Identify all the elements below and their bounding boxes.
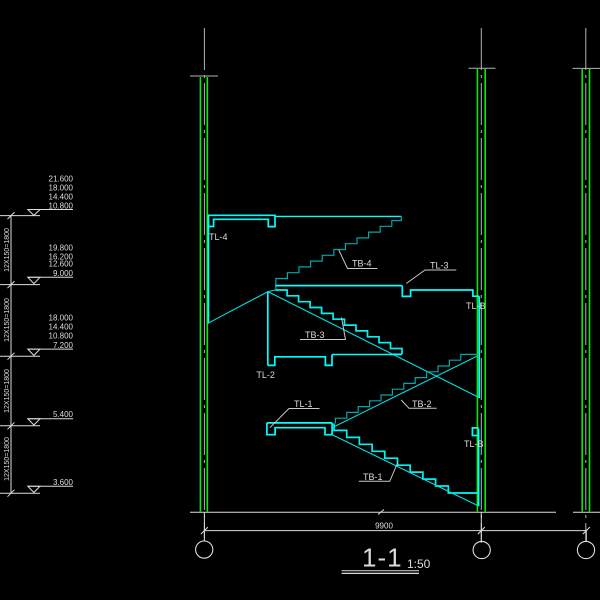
svg-text:1-1: 1-1 xyxy=(362,543,403,573)
svg-text:TB-2: TB-2 xyxy=(412,399,432,409)
svg-text:14.400: 14.400 xyxy=(49,193,74,202)
svg-text:TL-2: TL-2 xyxy=(256,370,275,380)
svg-text:10.800: 10.800 xyxy=(49,332,74,341)
svg-text:18.000: 18.000 xyxy=(49,314,74,323)
svg-text:10.800: 10.800 xyxy=(49,201,74,210)
svg-text:3.600: 3.600 xyxy=(53,478,74,487)
svg-text:TL-B: TL-B xyxy=(466,301,486,311)
svg-text:12X150=1800: 12X150=1800 xyxy=(4,298,11,342)
svg-text:TB-3: TB-3 xyxy=(305,330,325,340)
svg-text:12X150=1800: 12X150=1800 xyxy=(4,228,11,272)
svg-text:1:50: 1:50 xyxy=(407,557,431,571)
svg-text:12X150=1800: 12X150=1800 xyxy=(4,437,11,481)
svg-text:18.000: 18.000 xyxy=(49,184,74,193)
svg-text:TB-4: TB-4 xyxy=(352,259,372,269)
svg-text:21.600: 21.600 xyxy=(49,175,74,184)
svg-text:TB-1: TB-1 xyxy=(363,472,383,482)
svg-text:TL-4: TL-4 xyxy=(209,232,228,242)
svg-text:9900: 9900 xyxy=(375,522,393,531)
svg-text:TL-B: TL-B xyxy=(464,439,484,449)
svg-text:5.400: 5.400 xyxy=(53,410,74,419)
svg-text:TL-1: TL-1 xyxy=(294,399,313,409)
svg-text:14.400: 14.400 xyxy=(49,323,74,332)
svg-text:TL-3: TL-3 xyxy=(430,260,449,270)
svg-text:12.600: 12.600 xyxy=(49,260,74,269)
svg-text:9.000: 9.000 xyxy=(53,269,74,278)
svg-text:12X150=1800: 12X150=1800 xyxy=(4,369,11,413)
svg-text:19.800: 19.800 xyxy=(49,244,74,253)
